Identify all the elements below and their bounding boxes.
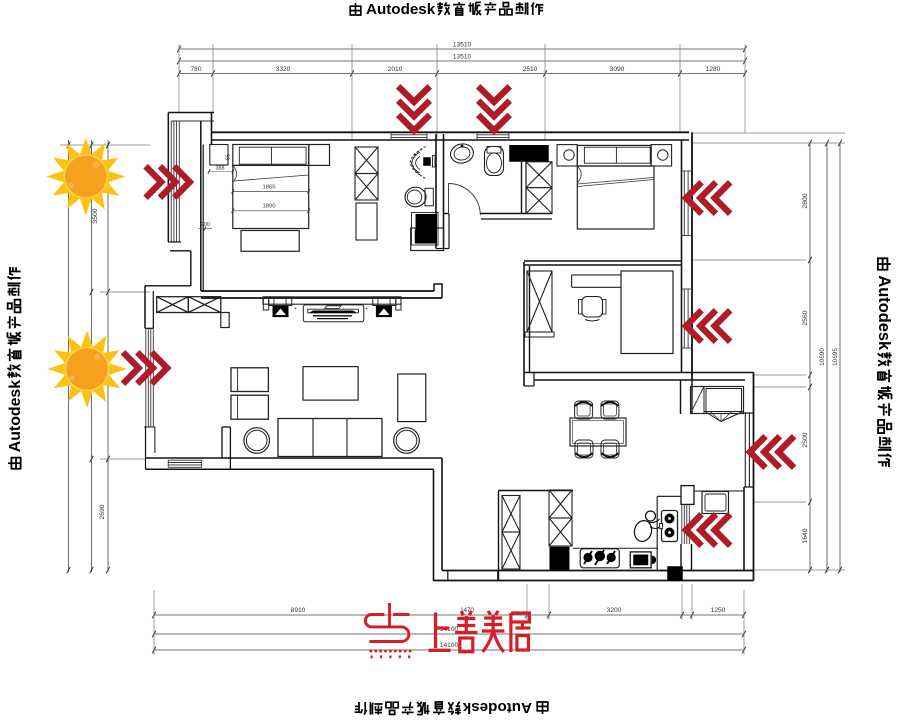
svg-text:10690: 10690 (819, 348, 826, 366)
svg-text:+: + (294, 306, 297, 312)
svg-text:+: + (365, 306, 368, 312)
svg-text:780: 780 (190, 66, 201, 73)
svg-text:1865: 1865 (263, 185, 276, 191)
svg-text:55: 55 (226, 154, 232, 160)
svg-text:3500: 3500 (92, 208, 99, 223)
svg-text:388: 388 (216, 166, 225, 172)
svg-text:1280: 1280 (706, 66, 721, 73)
svg-text:2560: 2560 (802, 310, 809, 325)
svg-text:2010: 2010 (388, 66, 403, 73)
svg-text:1800: 1800 (263, 204, 276, 210)
svg-text:2500: 2500 (802, 432, 809, 447)
svg-text:1640: 1640 (802, 528, 809, 543)
svg-text:13510: 13510 (453, 42, 472, 49)
svg-text:2510: 2510 (523, 66, 538, 73)
svg-text:3090: 3090 (610, 66, 625, 73)
svg-text:2800: 2800 (802, 193, 809, 208)
svg-text:3320: 3320 (276, 66, 291, 73)
svg-text:3200: 3200 (607, 607, 622, 614)
svg-text:14100: 14100 (440, 642, 459, 649)
svg-text:10695: 10695 (832, 348, 839, 366)
svg-text:1250: 1250 (711, 607, 726, 614)
svg-text:13510: 13510 (453, 54, 472, 61)
svg-text:8910: 8910 (291, 607, 306, 614)
svg-text:2690: 2690 (99, 504, 106, 519)
